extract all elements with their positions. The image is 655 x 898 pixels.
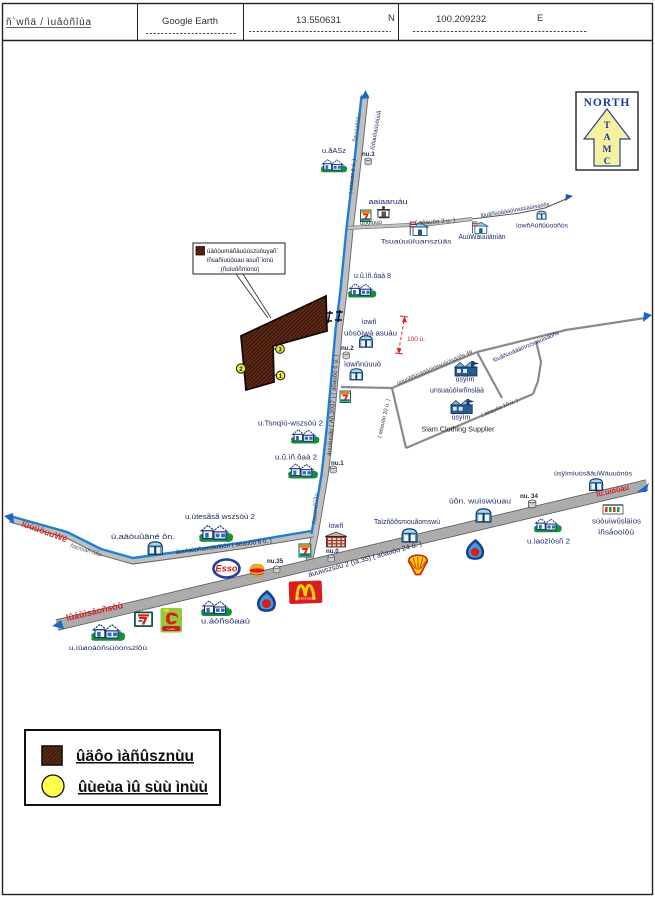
svg-text:nu.2: nu.2 [341, 345, 354, 352]
svg-text:uòsòìwá asuáu: uòsòìwá asuáu [344, 331, 397, 338]
svg-text:E: E [537, 13, 543, 24]
svg-text:3: 3 [278, 347, 282, 354]
svg-text:nu.3: nu.3 [362, 151, 375, 158]
svg-text:ûäôo ìàñûsznùu: ûäôo ìàñûsznùu [76, 748, 194, 765]
svg-text:( aòauòo 10 ù. ): ( aòauòo 10 ù. ) [377, 398, 392, 438]
svg-text:nu.35: nu.35 [267, 558, 284, 565]
svg-text:ìowñ: ìowñ [362, 319, 377, 326]
svg-text:süòuìwûsläìos: süòuìwûsläìos [592, 519, 642, 526]
svg-text:u.ìaozìòsñ 2: u.ìaozìòsñ 2 [527, 539, 570, 546]
svg-text:NORTH: NORTH [584, 97, 631, 109]
svg-text:unsuaùòìwñnsläà: unsuaùòìwñnsläà [430, 388, 484, 395]
svg-text:ïñsañìuùóúau asuñ`ìonù: ïñsañìuùóúau asuñ`ìonù [207, 257, 274, 264]
svg-text:N: N [388, 13, 395, 24]
svg-text:( aòauòo 3 u. ): ( aòauòo 3 u. ) [415, 217, 456, 227]
svg-text:lûôaulìaùüòùùå: lûôaulìaùüòùùå [369, 109, 383, 150]
svg-text:u.û.ìñ.ôaà 8: u.û.ìñ.ôaà 8 [354, 273, 391, 280]
svg-text:nu. 34: nu. 34 [520, 493, 538, 500]
svg-text:Taìzñôôsmouãomswù: Taìzñôôsmouãomswù [374, 519, 440, 526]
svg-text:lûuãñùoâäáòìnssùáùìsáòñs: lûuãñùoâäáòìnssùáùìsáòñs [492, 331, 560, 364]
svg-text:u.áòñsôaaù: u.áòñsôaaù [201, 619, 250, 626]
svg-text:13.550631: 13.550631 [296, 15, 341, 26]
svg-text:ûäôòumàñâuûúszùôuyañ`: ûäôòumàñâuûúszùôuyañ` [207, 248, 279, 255]
svg-text:ìowñnùuuò: ìowñnùuuò [344, 362, 381, 369]
svg-text:aaiaaruáu: aaiaaruáu [369, 199, 408, 206]
svg-text:ñ`wñä / ìuâòñîùa: ñ`wñä / ìuâòñîùa [6, 16, 91, 28]
svg-text:Siam Clothing Supplier: Siam Clothing Supplier [421, 425, 495, 434]
svg-text:C: C [604, 157, 611, 167]
svg-text:A: A [604, 133, 611, 143]
svg-text:T: T [604, 121, 611, 131]
svg-text:ìowñ: ìowñ [329, 523, 344, 530]
svg-text:ù.aäòuûäné ôn.: ù.aäòuûäné ôn. [111, 534, 175, 541]
svg-text:u.Tsnqìù-wszsòù 2: u.Tsnqìù-wszsòù 2 [258, 421, 323, 428]
svg-text:u.ãASz: u.ãASz [322, 148, 347, 155]
svg-text:AuùWáuuiánìàn: AuùWáuuiánìàn [459, 234, 506, 241]
svg-text:ûùeùa ìû sùù ìnùù: ûùeùa ìû sùù ìnùù [78, 779, 208, 796]
svg-text:Google Earth: Google Earth [162, 16, 218, 27]
svg-text:Tsuaùuùîuanszùäs: Tsuaùuùîuanszùäs [381, 239, 453, 246]
svg-text:ùôn. wuìswùuau: ùôn. wuìswùuau [449, 499, 511, 506]
svg-text:u.ìûøoáòñsùòonszlôù: u.ìûøoáòñsùòonszlôù [69, 645, 147, 652]
svg-text:M: M [603, 145, 612, 155]
svg-text:1: 1 [279, 373, 283, 380]
svg-text:100.209232: 100.209232 [436, 14, 486, 25]
svg-text:u.ùtesãsã wszsòù 2: u.ùtesãsã wszsòù 2 [185, 514, 255, 521]
svg-text:lûùüòuuWé: lûùüòuuWé [20, 518, 69, 544]
svg-text:ìowñAúñûùoòñòs: ìowñAúñûùoòñòs [516, 223, 569, 230]
svg-text:ùsÿìm: ùsÿìm [452, 415, 471, 422]
svg-text:ûoulùúo: ûoulùúo [360, 219, 383, 227]
svg-text:ìñsåooìòù: ìñsåooìòù [598, 529, 634, 537]
svg-text:nu.1: nu.1 [331, 460, 344, 467]
svg-text:ùsÿìm: ùsÿìm [456, 377, 475, 384]
svg-text:( aòauòo 10 ù. ): ( aòauòo 10 ù. ) [480, 398, 519, 419]
svg-text:(ñuìuôñmonú): (ñuìuôñmonú) [221, 266, 260, 273]
svg-text:u.û.ìñ.ôaà 2: u.û.ìñ.ôaà 2 [275, 455, 317, 462]
svg-text:100 ù.: 100 ù. [407, 336, 425, 343]
svg-text:nu.0: nu.0 [326, 548, 339, 555]
svg-text:2: 2 [239, 366, 243, 373]
svg-text:ùsÿìmìuòsãäuWáuuònòs: ùsÿìmìuòsãäuWáuuònòs [554, 471, 633, 478]
